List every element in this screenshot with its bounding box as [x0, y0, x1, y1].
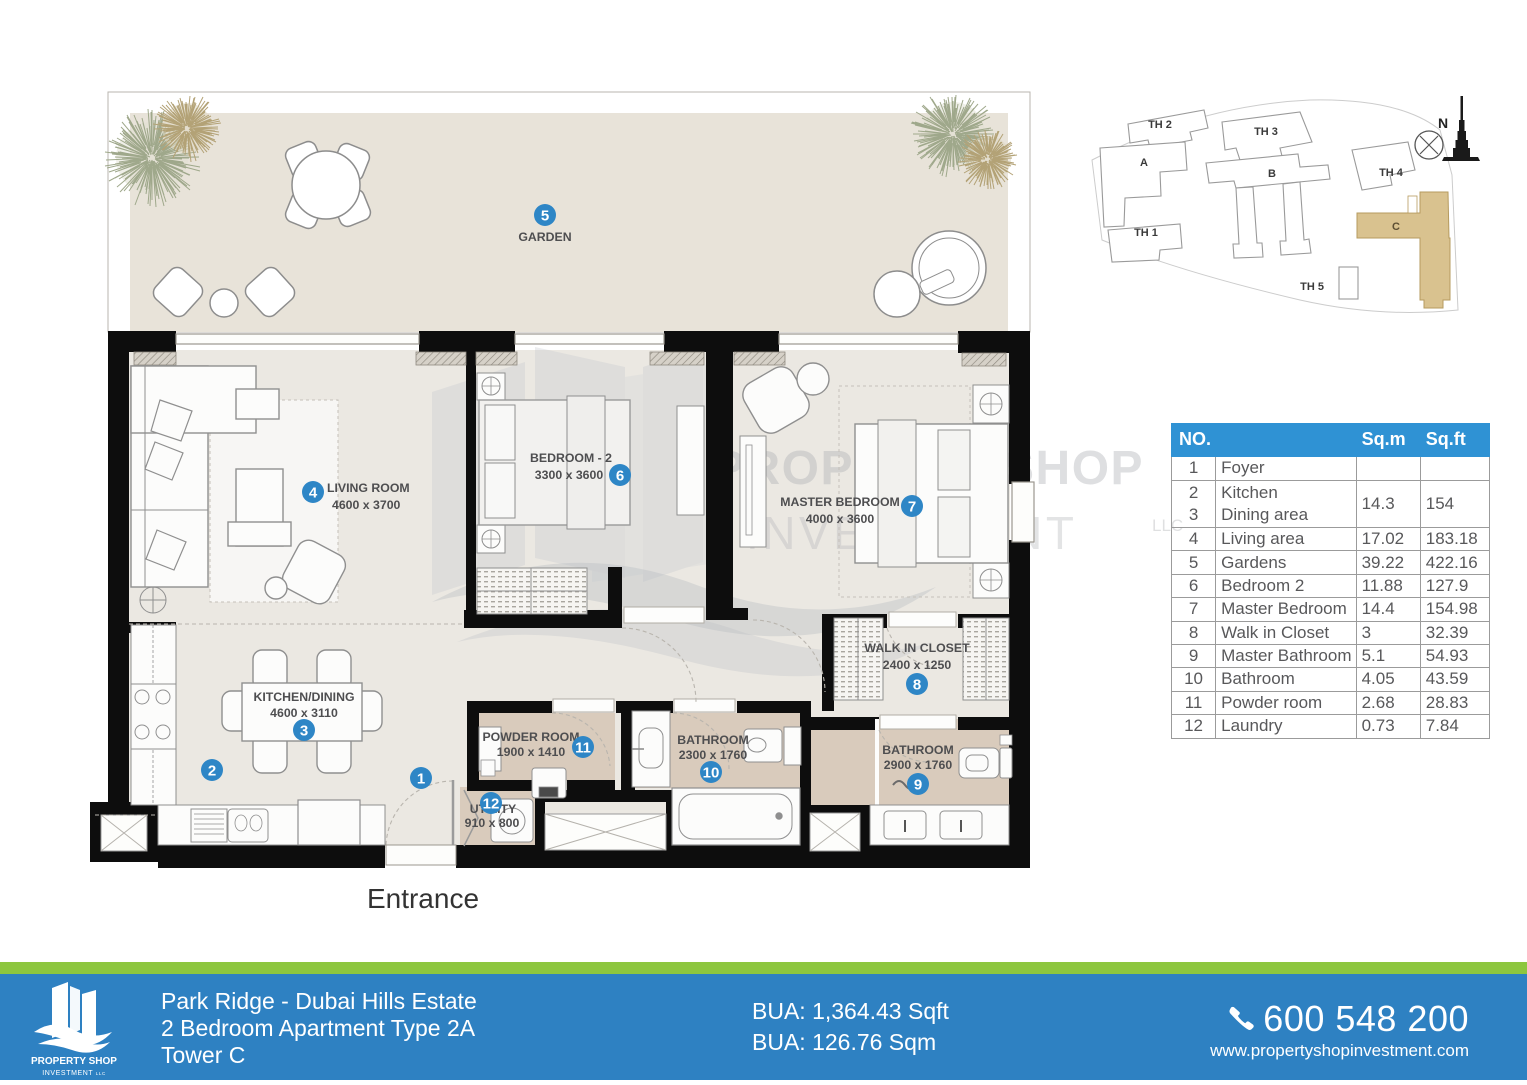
svg-text:910 x 800: 910 x 800: [465, 816, 520, 830]
svg-text:1: 1: [417, 771, 425, 788]
svg-text:4600 x 3700: 4600 x 3700: [332, 498, 401, 512]
svg-text:WALK IN CLOSET: WALK IN CLOSET: [864, 641, 970, 655]
svg-text:TH 4: TH 4: [1379, 167, 1404, 179]
svg-text:N: N: [1438, 115, 1448, 131]
svg-text:TH 2: TH 2: [1148, 119, 1172, 131]
svg-text:3300 x 3600: 3300 x 3600: [535, 468, 604, 482]
svg-text:C: C: [1392, 221, 1400, 233]
svg-text:B: B: [1268, 168, 1276, 180]
svg-text:10: 10: [703, 765, 720, 782]
svg-text:MASTER BEDROOM: MASTER BEDROOM: [780, 495, 900, 509]
svg-text:TH 3: TH 3: [1254, 126, 1278, 138]
svg-text:6: 6: [616, 468, 624, 485]
svg-text:KITCHEN/DINING: KITCHEN/DINING: [253, 690, 354, 704]
svg-text:9: 9: [914, 777, 922, 794]
svg-text:BEDROOM - 2: BEDROOM - 2: [530, 451, 612, 465]
svg-text:2300 x 1760: 2300 x 1760: [679, 748, 748, 762]
svg-text:3: 3: [300, 723, 308, 740]
svg-text:GARDEN: GARDEN: [518, 230, 571, 244]
svg-text:2400 x 1250: 2400 x 1250: [883, 658, 952, 672]
svg-text:2900 x 1760: 2900 x 1760: [884, 758, 953, 772]
svg-text:2: 2: [208, 763, 216, 780]
svg-text:POWDER ROOM: POWDER ROOM: [482, 730, 579, 744]
svg-text:A: A: [1140, 157, 1148, 169]
svg-text:12: 12: [483, 796, 500, 813]
svg-text:BATHROOM: BATHROOM: [677, 733, 749, 747]
svg-text:4000 x 3600: 4000 x 3600: [806, 512, 875, 526]
svg-text:7: 7: [908, 499, 916, 516]
svg-text:4600 x 3110: 4600 x 3110: [270, 706, 338, 720]
svg-text:BATHROOM: BATHROOM: [882, 743, 954, 757]
svg-text:11: 11: [575, 740, 591, 757]
svg-text:TH 5: TH 5: [1300, 281, 1324, 293]
svg-text:4: 4: [309, 485, 318, 502]
svg-text:INVESTMENT LLC: INVESTMENT LLC: [42, 1070, 106, 1075]
svg-text:5: 5: [541, 208, 549, 225]
svg-text:TH 1: TH 1: [1134, 227, 1158, 239]
svg-text:1900 x 1410: 1900 x 1410: [497, 745, 566, 759]
svg-text:8: 8: [913, 677, 921, 694]
svg-text:LIVING ROOM: LIVING ROOM: [327, 481, 410, 495]
svg-text:Entrance: Entrance: [367, 883, 479, 914]
svg-text:PROPERTY SHOP: PROPERTY SHOP: [31, 1056, 117, 1067]
